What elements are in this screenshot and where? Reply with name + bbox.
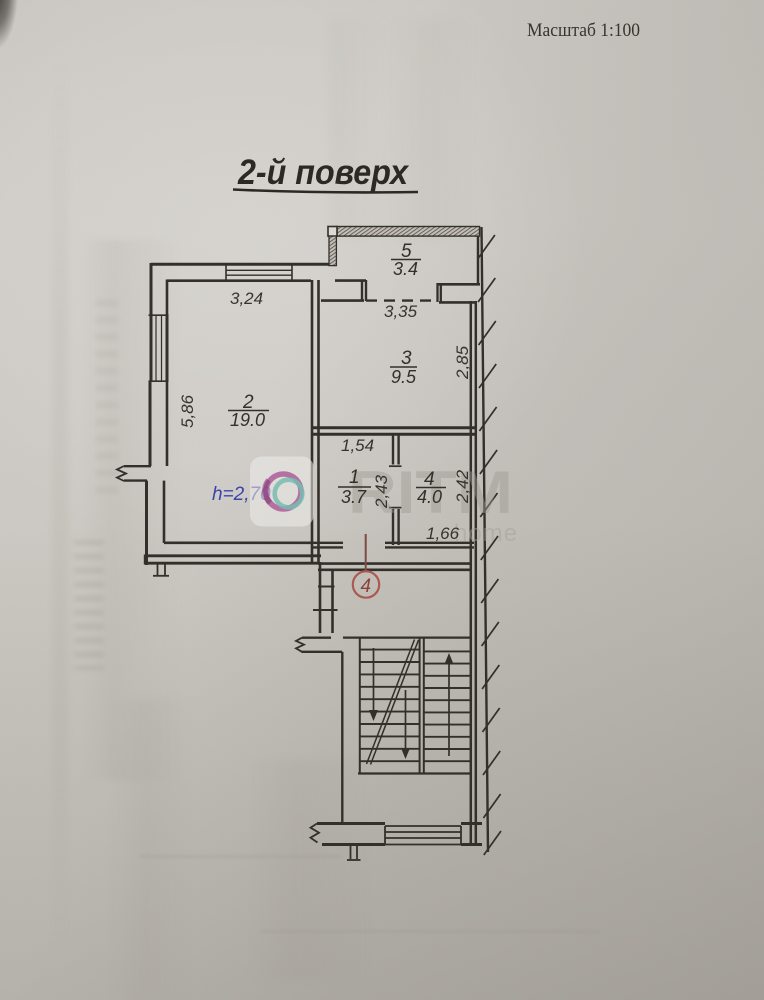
- svg-text:1,66: 1,66: [426, 524, 460, 543]
- svg-text:9.5: 9.5: [391, 367, 417, 387]
- svg-text:2,43: 2,43: [372, 474, 391, 509]
- svg-text:3,35: 3,35: [384, 302, 418, 321]
- svg-text:2-й поверх: 2-й поверх: [237, 153, 409, 192]
- svg-text:2,42: 2,42: [453, 469, 472, 504]
- svg-text:Масштаб 1:100: Масштаб 1:100: [527, 20, 640, 41]
- svg-text:4.0: 4.0: [417, 487, 442, 507]
- svg-text:home: home: [454, 520, 518, 547]
- svg-text:4: 4: [361, 576, 372, 597]
- svg-text:3,24: 3,24: [230, 289, 263, 308]
- svg-text:19.0: 19.0: [230, 410, 265, 430]
- svg-text:1,54: 1,54: [341, 436, 374, 455]
- svg-text:3.7: 3.7: [341, 487, 367, 507]
- svg-text:1: 1: [349, 467, 360, 488]
- svg-text:3: 3: [401, 348, 412, 369]
- svg-text:5,86: 5,86: [178, 394, 197, 428]
- svg-text:3.4: 3.4: [393, 259, 418, 279]
- svg-text:2,85: 2,85: [453, 345, 472, 380]
